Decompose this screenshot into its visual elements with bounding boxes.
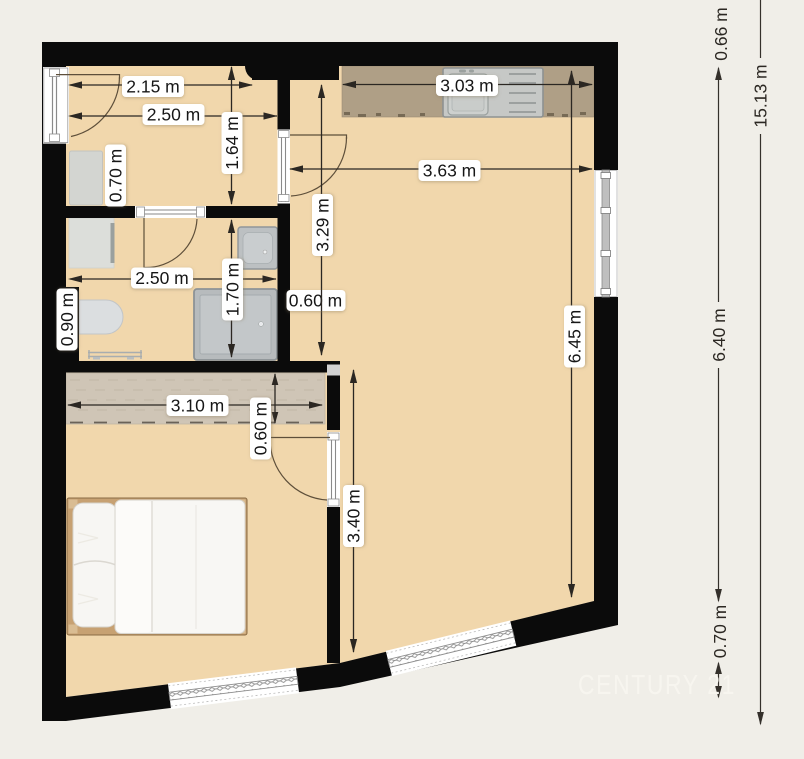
svg-text:3.03 m: 3.03 m [440, 76, 494, 96]
svg-text:2.15 m: 2.15 m [126, 77, 180, 97]
svg-text:0.60 m: 0.60 m [251, 402, 271, 456]
svg-text:3.40 m: 3.40 m [344, 489, 364, 543]
svg-text:3.10 m: 3.10 m [171, 396, 225, 416]
svg-text:0.60 m: 0.60 m [289, 291, 343, 311]
svg-text:2.50 m: 2.50 m [147, 105, 201, 125]
svg-text:15.13 m: 15.13 m [751, 64, 771, 127]
svg-text:6.45 m: 6.45 m [565, 310, 585, 364]
svg-text:3.63 m: 3.63 m [423, 161, 477, 181]
svg-text:CENTURY 21: CENTURY 21 [578, 669, 736, 700]
svg-text:0.70 m: 0.70 m [710, 605, 730, 659]
svg-text:0.70 m: 0.70 m [106, 149, 126, 203]
svg-text:0.90 m: 0.90 m [57, 293, 77, 347]
svg-text:1.64 m: 1.64 m [222, 116, 242, 170]
svg-text:1.70 m: 1.70 m [223, 263, 243, 317]
svg-text:0.66 m: 0.66 m [711, 7, 731, 61]
svg-text:3.29 m: 3.29 m [313, 198, 333, 252]
svg-text:6.40 m: 6.40 m [709, 308, 729, 362]
svg-text:2.50 m: 2.50 m [135, 268, 189, 288]
